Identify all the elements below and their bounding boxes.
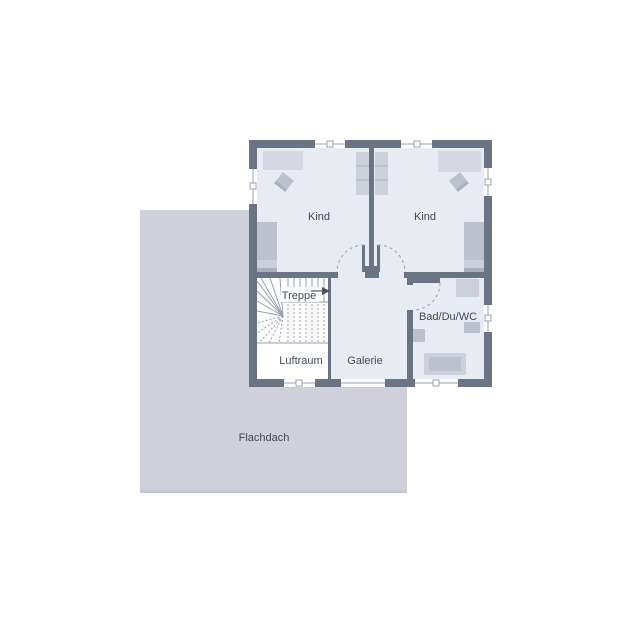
flat-roof-edge bbox=[140, 490, 407, 493]
shower bbox=[424, 353, 466, 375]
label-galerie: Galerie bbox=[347, 355, 382, 367]
wall-top bbox=[249, 140, 492, 148]
window-galerie-bottom bbox=[341, 379, 385, 387]
wall-bad-left-stub bbox=[407, 278, 413, 285]
label-flachdach: Flachdach bbox=[239, 432, 290, 444]
wardrobe-kind-left bbox=[356, 152, 369, 195]
window-kind-right-top bbox=[401, 140, 432, 148]
washbasin bbox=[456, 279, 479, 297]
window-kind-left-side bbox=[249, 169, 257, 204]
desk-kind-left bbox=[263, 151, 303, 170]
wall-door-stub-center bbox=[365, 266, 379, 278]
window-kind-left-top bbox=[315, 140, 345, 148]
desk-kind-right bbox=[438, 151, 481, 172]
window-luftraum-bottom bbox=[284, 379, 315, 387]
wall-stair-railing bbox=[328, 278, 331, 379]
wall-kind-left-bottom bbox=[257, 272, 338, 278]
wardrobe-kind-right bbox=[375, 152, 388, 195]
bed-kind-right bbox=[464, 222, 484, 272]
window-kind-right-side bbox=[484, 168, 492, 196]
label-kind-left: Kind bbox=[308, 211, 330, 223]
floorplan-canvas: Kind Kind Treppe Luftraum Galerie Bad/Du… bbox=[0, 0, 636, 636]
door-leaf-kind-right bbox=[377, 245, 380, 272]
label-kind-right: Kind bbox=[414, 211, 436, 223]
label-treppe: Treppe bbox=[282, 290, 316, 302]
label-luftraum: Luftraum bbox=[279, 355, 322, 367]
wall-between-kind-rooms bbox=[369, 148, 374, 272]
wall-bad-left bbox=[407, 310, 413, 379]
bed-kind-left bbox=[257, 222, 277, 272]
floorplan-drawing: Kind Kind Treppe Luftraum Galerie Bad/Du… bbox=[0, 0, 636, 636]
window-bad-bottom bbox=[415, 379, 458, 387]
door-leaf-kind-left bbox=[362, 245, 365, 272]
label-bad: Bad/Du/WC bbox=[419, 311, 477, 323]
window-bad-side bbox=[484, 305, 492, 332]
door-leaf-bad bbox=[413, 277, 440, 283]
bath-side-unit bbox=[464, 322, 480, 333]
toilet bbox=[413, 329, 425, 342]
